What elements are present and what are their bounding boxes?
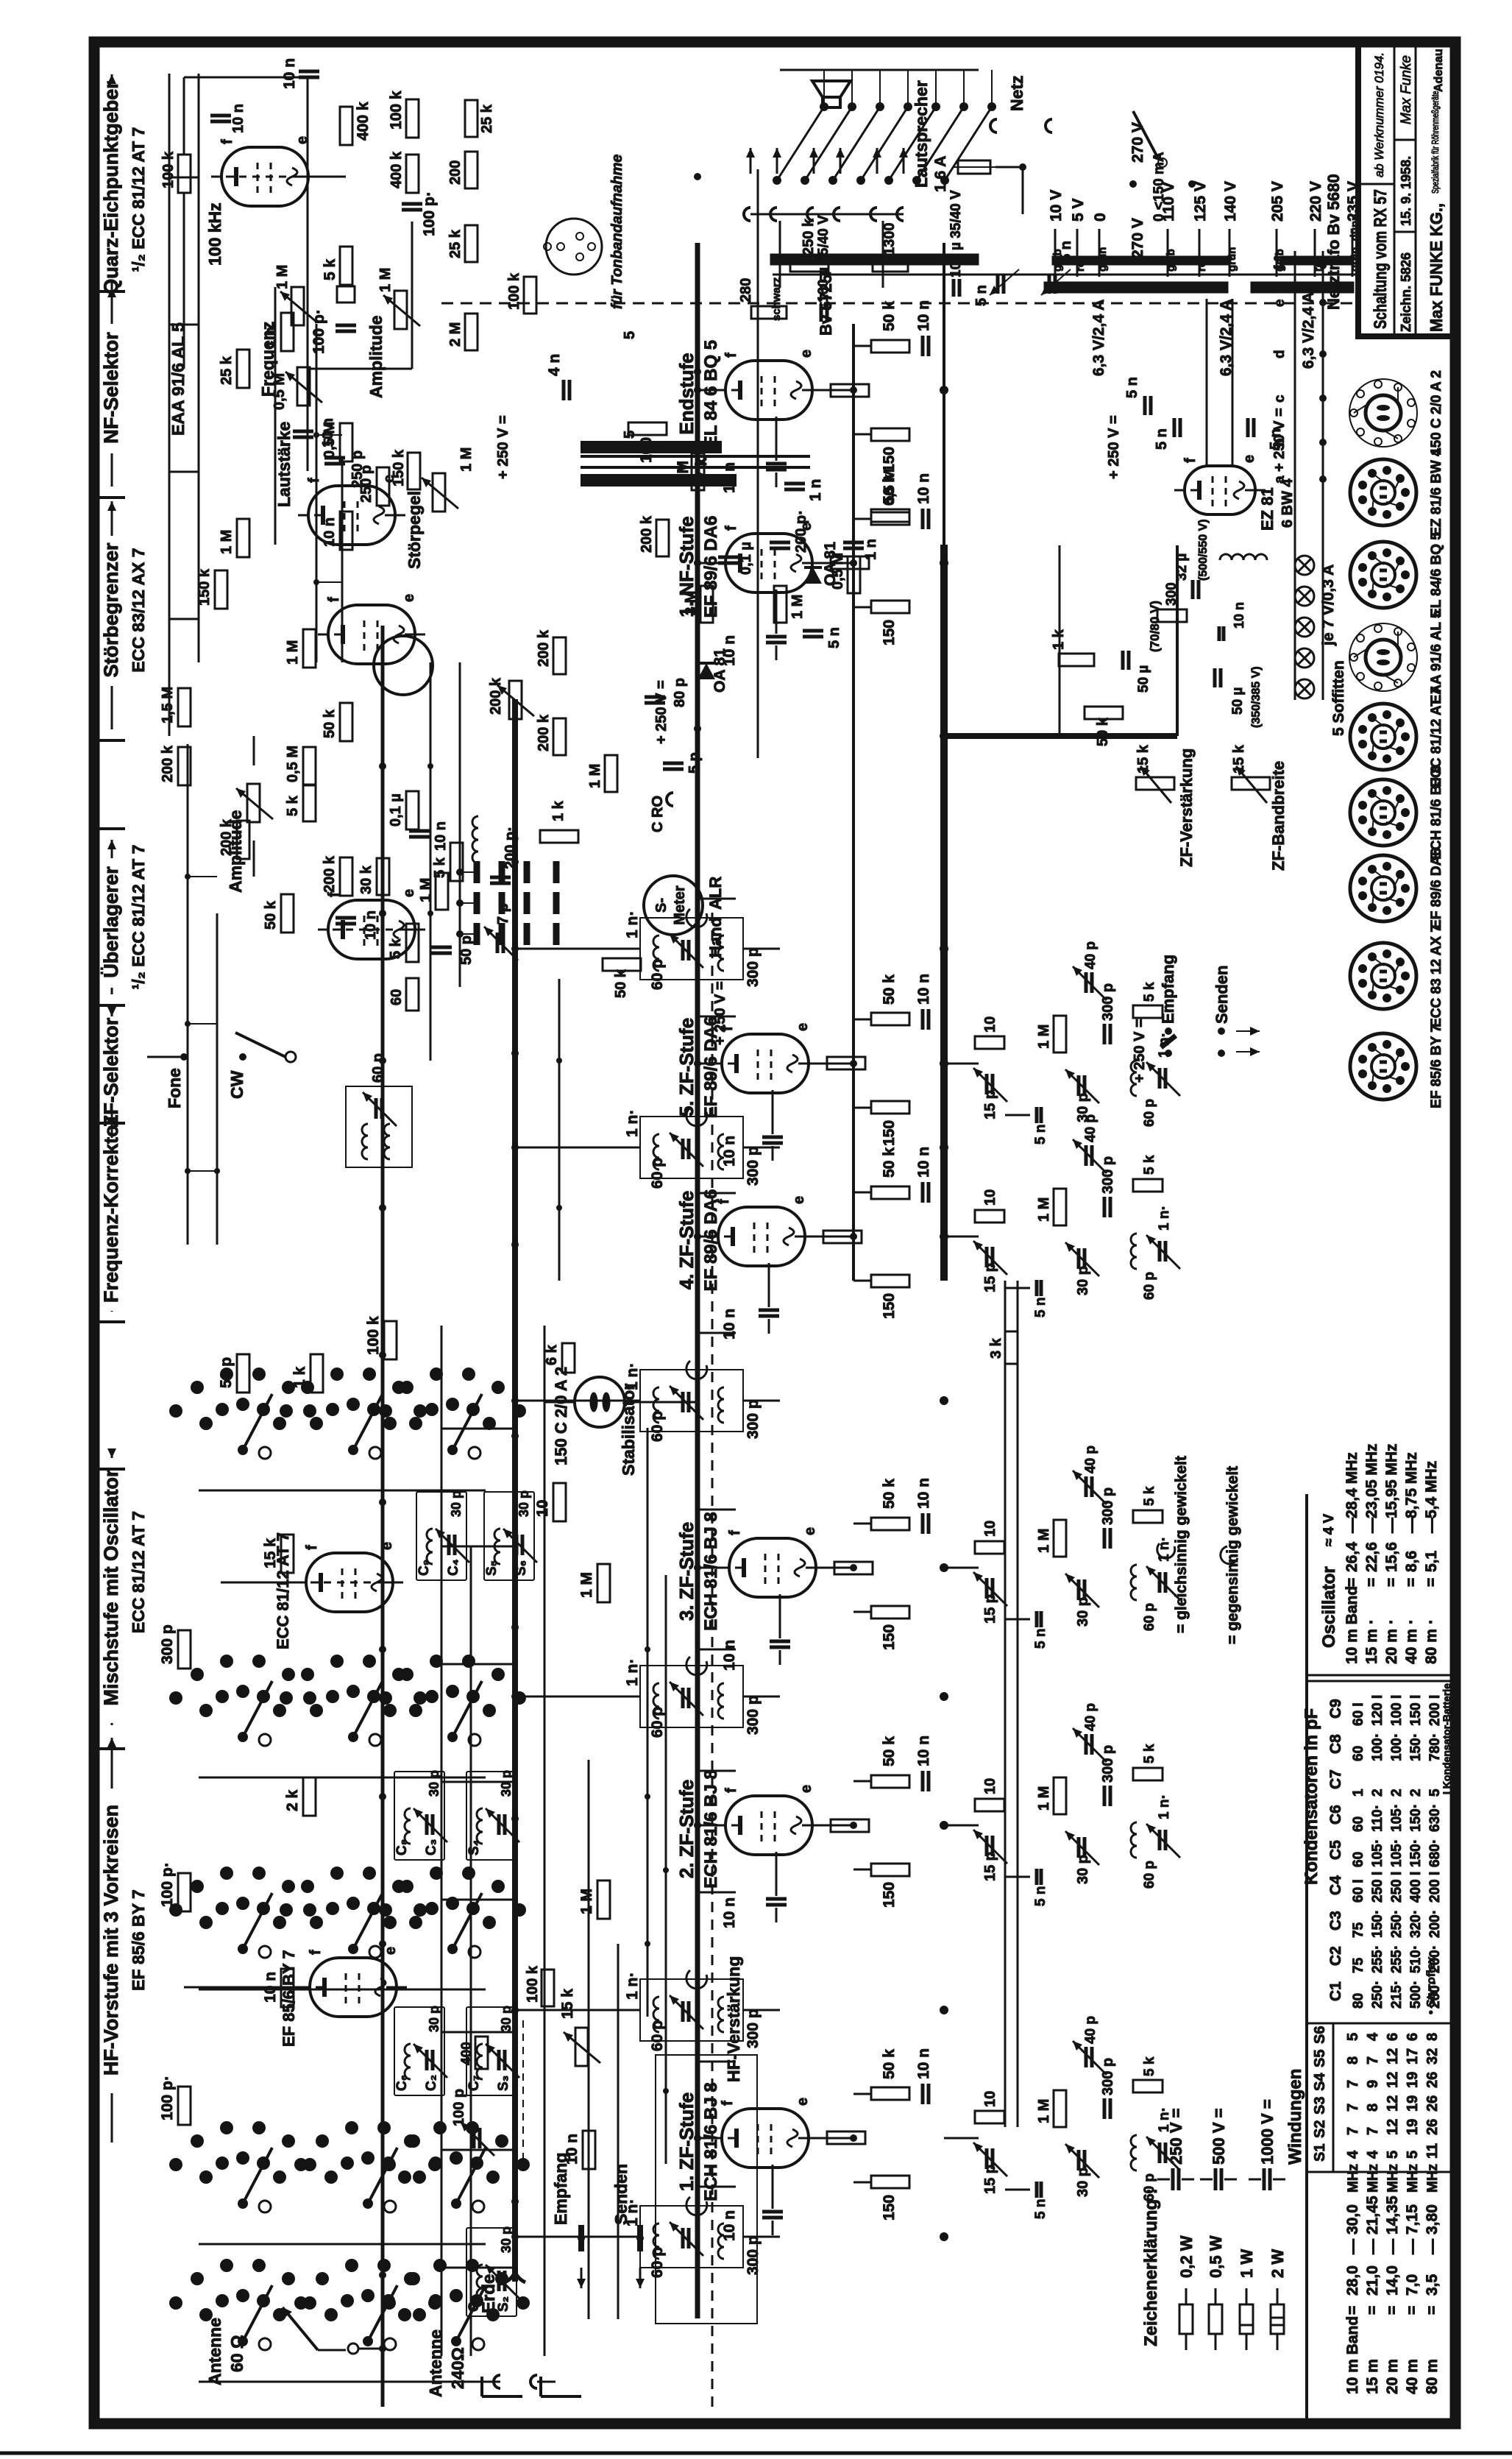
svg-text:Mischstufe mit Oscillator: Mischstufe mit Oscillator [100, 1469, 122, 1706]
svg-text:C9: C9 [1327, 1699, 1344, 1719]
svg-text:e: e [798, 1785, 814, 1793]
svg-text:17: 17 [1405, 2048, 1421, 2065]
svg-text:+ 250 V =: + 250 V = [1132, 1019, 1148, 1083]
svg-text:80 p: 80 p [672, 678, 688, 707]
svg-text:7,0: 7,0 [1404, 2274, 1421, 2296]
svg-text:ECC 83 12 AX 7: ECC 83 12 AX 7 [1429, 924, 1444, 1027]
svg-text:300 p: 300 p [1100, 1745, 1116, 1783]
svg-text:Adenau: Adenau [1433, 49, 1445, 92]
svg-text:5 k: 5 k [1142, 1486, 1157, 1506]
svg-text:MHz: MHz [1366, 2164, 1381, 2193]
svg-text:250‧: 250‧ [1370, 1981, 1385, 2009]
svg-text:270 V: 270 V [1129, 218, 1146, 258]
svg-text:= gegensinnig gewickelt: = gegensinnig gewickelt [1224, 1466, 1241, 1644]
svg-text:15 k: 15 k [559, 1989, 576, 2019]
svg-text:60 I: 60 I [1351, 1702, 1366, 1726]
svg-text:—: — [1364, 2239, 1381, 2254]
svg-text:C6: C6 [1327, 1805, 1344, 1825]
svg-text:15,95 MHz: 15,95 MHz [1383, 1443, 1400, 1518]
svg-text:300 p: 300 p [745, 1695, 762, 1735]
svg-text:105‧: 105‧ [1389, 1804, 1405, 1832]
svg-text:C₈: C₈ [394, 1839, 410, 1855]
svg-text:e: e [791, 1196, 807, 1204]
svg-text:150‧: 150‧ [1408, 1804, 1424, 1832]
svg-text:5 k: 5 k [1142, 1155, 1157, 1175]
svg-text:10: 10 [982, 2091, 998, 2107]
svg-text:ZF-Bandbreite: ZF-Bandbreite [1269, 761, 1288, 871]
svg-text:I Kondensator-Batterie: I Kondensator-Batterie [1441, 1683, 1452, 1794]
svg-text:200 p‧: 200 p‧ [793, 511, 809, 553]
svg-text:e: e [1272, 299, 1288, 307]
svg-text:300 p: 300 p [1100, 1487, 1116, 1525]
svg-text:400 k: 400 k [388, 151, 405, 188]
svg-text:25 k: 25 k [219, 355, 235, 385]
svg-text:1 M: 1 M [789, 595, 806, 619]
svg-text:28,4 MHz: 28,4 MHz [1344, 1452, 1360, 1518]
svg-text:200 k: 200 k [322, 855, 338, 893]
svg-text:510‧: 510‧ [1408, 1945, 1424, 1973]
svg-text:40 m: 40 m [1404, 2359, 1421, 2394]
svg-text:=: = [1383, 1578, 1400, 1587]
svg-text:50 k: 50 k [1095, 717, 1111, 746]
svg-text:1 M: 1 M [377, 268, 394, 292]
svg-text:=: = [1384, 2306, 1401, 2315]
svg-text:10 n: 10 n [433, 821, 449, 851]
svg-text:1 M: 1 M [285, 640, 301, 665]
svg-text:0 <150 mA: 0 <150 mA [1151, 152, 1167, 222]
svg-text:100‧: 100‧ [1370, 1733, 1385, 1761]
svg-text:15 m: 15 m [1364, 2359, 1381, 2394]
svg-text:1 M: 1 M [1036, 1786, 1052, 1811]
svg-text:240Ω: 240Ω [448, 2347, 467, 2389]
svg-text:1 M: 1 M [1036, 1025, 1052, 1049]
svg-text:¹/₂ ECC 81/12 AT 7: ¹/₂ ECC 81/12 AT 7 [129, 845, 148, 990]
svg-text:5: 5 [1345, 2033, 1361, 2041]
svg-text:50 k: 50 k [881, 1736, 898, 1766]
svg-text:=: = [1363, 1578, 1380, 1587]
svg-text:5 n: 5 n [1033, 1125, 1048, 1144]
svg-text:OA 81: OA 81 [711, 648, 728, 693]
svg-text:S3: S3 [1312, 2097, 1328, 2115]
svg-text:30 p: 30 p [1075, 1597, 1091, 1627]
svg-text:EAA 91/6 AL 5: EAA 91/6 AL 5 [1429, 610, 1444, 704]
svg-text:1 n: 1 n [263, 327, 279, 348]
svg-text:12: 12 [1385, 2119, 1401, 2135]
svg-text:100 k: 100 k [160, 151, 177, 188]
svg-text:e: e [795, 2098, 811, 2106]
svg-text:Frequenz-Korrektor: Frequenz-Korrektor [100, 1117, 122, 1303]
svg-text:EF 85/6 BY 7: EF 85/6 BY 7 [280, 1950, 298, 2047]
svg-text:10 n: 10 n [721, 1309, 738, 1340]
svg-text:Spezialfabrik für Röhrenmeßger: Spezialfabrik für Röhrenmeßgeräte, [1430, 89, 1441, 194]
svg-text:=: = [1364, 2306, 1381, 2315]
svg-text:300 p: 300 p [159, 1624, 176, 1664]
svg-text:7,15: 7,15 [1404, 2204, 1421, 2235]
svg-text:10 n: 10 n [721, 2210, 738, 2241]
svg-text:e: e [1241, 455, 1257, 463]
svg-text:26: 26 [1424, 2119, 1441, 2135]
svg-text:60 p: 60 p [649, 1158, 666, 1189]
svg-text:Zeichenerklärung :: Zeichenerklärung : [1141, 2188, 1161, 2346]
svg-text:0,2 W: 0,2 W [1177, 2235, 1196, 2278]
svg-text:8,6: 8,6 [1403, 1551, 1420, 1572]
svg-text:2 k: 2 k [284, 1789, 301, 1811]
svg-text:8: 8 [1365, 2104, 1381, 2112]
svg-text:10 n: 10 n [915, 2048, 932, 2079]
svg-text:15 p: 15 p [982, 1594, 998, 1624]
svg-text:7 k: 7 k [693, 457, 710, 479]
svg-text:0,5 M: 0,5 M [881, 469, 898, 506]
svg-text:Max Funke: Max Funke [1399, 55, 1414, 124]
svg-text:15. 9. 1958.: 15. 9. 1958. [1399, 156, 1413, 226]
svg-text:EF 89/6 DA6: EF 89/6 DA6 [701, 1189, 721, 1292]
svg-text:50 k: 50 k [322, 709, 338, 738]
svg-text:10 n: 10 n [230, 104, 246, 133]
svg-text:EF 85/6 BY 7: EF 85/6 BY 7 [1429, 1025, 1444, 1108]
svg-text:e: e [802, 1527, 818, 1535]
svg-text:1 M: 1 M [578, 1889, 595, 1914]
svg-text:150: 150 [881, 2195, 898, 2221]
svg-text:110‧: 110‧ [1370, 1805, 1385, 1832]
svg-text:Max FUNKE KG.,: Max FUNKE KG., [1427, 203, 1446, 332]
svg-text:Hand: Hand [706, 917, 725, 958]
svg-text:60 p: 60 p [1142, 1272, 1157, 1300]
svg-text:f: f [306, 478, 322, 483]
svg-text:200 k: 200 k [536, 629, 552, 667]
svg-text:Stabilisator: Stabilisator [619, 1384, 638, 1476]
svg-text:1,6 A: 1,6 A [932, 156, 949, 192]
svg-text:S₆: S₆ [514, 1560, 529, 1576]
svg-text:500‧: 500‧ [1408, 1981, 1424, 2009]
svg-text:400 k: 400 k [355, 102, 372, 141]
svg-text:30 p: 30 p [427, 2006, 441, 2032]
svg-text:60: 60 [1351, 1852, 1366, 1867]
svg-text:C3: C3 [1327, 1911, 1344, 1931]
svg-text:14,0: 14,0 [1384, 2265, 1401, 2296]
svg-text:19: 19 [1405, 2095, 1421, 2112]
svg-text:5: 5 [1385, 2151, 1401, 2159]
svg-text:e: e [379, 1542, 395, 1550]
svg-text:+ 250 V =: + 250 V = [653, 680, 670, 744]
svg-text:EF 85/6 BY 7: EF 85/6 BY 7 [129, 1889, 148, 1991]
svg-text:1 M: 1 M [587, 764, 603, 788]
svg-text:680‧: 680‧ [1427, 1839, 1443, 1867]
svg-text:255‧: 255‧ [1389, 1945, 1405, 1973]
svg-text:1 n: 1 n [807, 479, 824, 501]
svg-text:=: = [1404, 2306, 1421, 2315]
svg-text:100 p‧: 100 p‧ [159, 1863, 176, 1907]
svg-text:—: — [1403, 1518, 1420, 1533]
svg-text:5: 5 [622, 331, 638, 339]
svg-text:30 p: 30 p [1075, 1266, 1091, 1295]
svg-text:C4: C4 [1327, 1875, 1344, 1895]
svg-text:Schaltung vom RX 57: Schaltung vom RX 57 [1371, 189, 1391, 329]
svg-text:3. ZF-Stufe: 3. ZF-Stufe [675, 1522, 698, 1621]
svg-text:60 p: 60 p [1142, 1099, 1157, 1127]
svg-text:S5: S5 [1312, 2050, 1328, 2067]
svg-text:100 k: 100 k [525, 1965, 541, 2003]
svg-text:150‧: 150‧ [1370, 1910, 1385, 1938]
svg-text:MHz: MHz [1425, 2164, 1441, 2193]
svg-text:2. ZF-Stufe: 2. ZF-Stufe [675, 1780, 698, 1878]
svg-text:1 n‧: 1 n‧ [1157, 1206, 1172, 1231]
svg-text:—: — [1363, 1518, 1380, 1533]
svg-text:250‧: 250‧ [1389, 1910, 1405, 1938]
svg-text:200 I: 200 I [1427, 1872, 1443, 1903]
svg-text:C₄: C₄ [446, 1559, 461, 1576]
svg-text:500 V =: 500 V = [1210, 2109, 1228, 2165]
svg-text:150: 150 [881, 1120, 898, 1146]
svg-text:9: 9 [1365, 2080, 1381, 2088]
svg-text:c: c [1272, 394, 1288, 403]
svg-text:5,4 MHz: 5,4 MHz [1423, 1461, 1440, 1518]
svg-text:f: f [723, 1788, 739, 1793]
svg-text:0,1 µ: 0,1 µ [738, 542, 754, 575]
svg-text:f: f [1182, 458, 1199, 463]
svg-text:50 µ: 50 µ [1136, 665, 1151, 693]
svg-text:10 V: 10 V [1048, 190, 1065, 222]
svg-text:14,35: 14,35 [1384, 2196, 1401, 2235]
svg-text:100‧: 100‧ [1389, 1733, 1405, 1761]
svg-text:80: 80 [1351, 1993, 1366, 2009]
svg-text:(350/385 V): (350/385 V) [1250, 666, 1263, 728]
svg-text:f: f [723, 526, 739, 531]
svg-text:270 V: 270 V [1129, 122, 1146, 163]
svg-text:15,6: 15,6 [1383, 1542, 1400, 1572]
svg-text:ZF-Selektor: ZF-Selektor [100, 1017, 122, 1127]
svg-text:5 n: 5 n [826, 627, 842, 648]
svg-text:+ 250 V =: + 250 V = [712, 981, 728, 1045]
svg-text:EZ 81/6 BW 4: EZ 81/6 BW 4 [1429, 448, 1444, 537]
svg-text:EL 84/6 BQ 5: EL 84/6 BQ 5 [1429, 532, 1444, 618]
svg-text:50 k: 50 k [263, 900, 279, 930]
svg-text:60: 60 [1351, 1746, 1366, 1761]
svg-text:C₂: C₂ [424, 2075, 439, 2091]
svg-text:250 V =: 250 V = [1167, 2109, 1185, 2165]
svg-text:MHz: MHz [1405, 2164, 1421, 2193]
svg-text:4: 4 [1365, 2150, 1381, 2159]
svg-text:ZF-Verstärkung: ZF-Verstärkung [1177, 749, 1196, 867]
svg-text:C₇: C₇ [466, 2076, 482, 2091]
svg-text:EZ 81: EZ 81 [1258, 487, 1277, 531]
svg-text:200 k: 200 k [639, 515, 655, 553]
svg-text:21,0: 21,0 [1364, 2265, 1381, 2296]
svg-text:S₅: S₅ [484, 1560, 500, 1576]
svg-text:C₉: C₉ [416, 1560, 432, 1576]
svg-text:60 p: 60 p [649, 959, 666, 990]
svg-text:15 p: 15 p [982, 1852, 998, 1881]
svg-text:1 M: 1 M [458, 447, 475, 472]
svg-text:300 p: 300 p [1100, 2058, 1116, 2095]
svg-text:220 V: 220 V [1307, 181, 1324, 222]
svg-text:8: 8 [1345, 2056, 1361, 2065]
svg-text:S1: S1 [1312, 2144, 1328, 2162]
svg-text:25 k: 25 k [447, 229, 464, 258]
svg-text:200 k: 200 k [536, 714, 552, 751]
svg-text:e: e [381, 475, 397, 483]
svg-text:150 C 2/0 A 2: 150 C 2/0 A 2 [552, 1367, 570, 1465]
svg-text:30 k: 30 k [358, 865, 375, 894]
svg-text:30,0: 30,0 [1344, 2204, 1361, 2235]
svg-text:50 k: 50 k [613, 969, 629, 998]
svg-text:für Tonbandaufnahme: für Tonbandaufnahme [609, 155, 625, 309]
svg-text:e: e [401, 594, 417, 602]
svg-text:C7: C7 [1327, 1769, 1344, 1789]
svg-text:10 m Band: 10 m Band [1344, 1586, 1360, 1664]
svg-text:f: f [727, 1530, 743, 1535]
svg-text:HF-Verstärkung: HF-Verstärkung [724, 1956, 743, 2082]
svg-text:30 p: 30 p [1075, 2168, 1091, 2197]
svg-text:30 p: 30 p [1075, 1093, 1091, 1122]
svg-text:S-: S- [653, 898, 670, 913]
svg-text:=: = [1424, 2306, 1441, 2315]
svg-text:80 m ‧: 80 m ‧ [1423, 1620, 1440, 1664]
svg-text:5 k: 5 k [432, 857, 448, 878]
svg-text:6: 6 [1405, 2033, 1421, 2041]
svg-text:—: — [1344, 2239, 1361, 2254]
svg-text:Fone: Fone [165, 1068, 184, 1108]
svg-text:C₆: C₆ [394, 2075, 410, 2091]
svg-text:150: 150 [881, 447, 898, 473]
svg-text:255‧: 255‧ [1370, 1945, 1385, 1973]
svg-text:215‧: 215‧ [1389, 1981, 1405, 2009]
svg-text:=: = [1344, 1578, 1360, 1587]
svg-text:6 k: 6 k [544, 1344, 560, 1365]
svg-text:1 n: 1 n [863, 539, 879, 560]
svg-text:7: 7 [1345, 2127, 1361, 2135]
svg-text:300 p: 300 p [1100, 983, 1116, 1021]
svg-text:22,6: 22,6 [1363, 1542, 1380, 1572]
svg-text:100 p‧: 100 p‧ [159, 2076, 176, 2120]
svg-text:10 n: 10 n [721, 1136, 738, 1167]
svg-text:40 p: 40 p [1083, 2016, 1098, 2044]
svg-text:1 k: 1 k [291, 1366, 308, 1388]
svg-text:0,5 M: 0,5 M [285, 746, 301, 782]
svg-text:C RO: C RO [650, 796, 666, 832]
svg-text:=: = [1423, 1578, 1440, 1587]
svg-text:(500/550 V): (500/550 V) [1197, 519, 1210, 581]
svg-text:15 p: 15 p [982, 2165, 998, 2194]
svg-text:MHz: MHz [1385, 2164, 1401, 2193]
svg-text:=: = [1403, 1578, 1420, 1587]
svg-text:1 k: 1 k [550, 800, 567, 821]
svg-text:60 I: 60 I [1351, 1879, 1366, 1903]
svg-text:60 p: 60 p [649, 1411, 666, 1442]
svg-text:1 W: 1 W [1238, 2249, 1256, 2278]
svg-text:300 p: 300 p [745, 2009, 762, 2048]
svg-text:Störbegrenzer: Störbegrenzer [100, 542, 122, 678]
svg-text:ECH 81/6 BJ 8: ECH 81/6 BJ 8 [701, 1512, 721, 1630]
svg-text:—: — [1424, 2239, 1441, 2254]
svg-text:5,1: 5,1 [1423, 1550, 1440, 1572]
svg-text:15 k: 15 k [1231, 744, 1247, 774]
svg-text:0,5 M: 0,5 M [271, 373, 288, 410]
svg-text:2: 2 [1389, 1788, 1405, 1797]
svg-text:300 p: 300 p [745, 1399, 762, 1439]
svg-text:10: 10 [534, 1500, 551, 1517]
svg-text:30 p: 30 p [1075, 1855, 1091, 1884]
svg-text:Quarz-Eichpunktgeber: Quarz-Eichpunktgeber [100, 81, 122, 294]
svg-text:5 p: 5 p [686, 752, 703, 774]
svg-text:7: 7 [1365, 2056, 1381, 2065]
svg-text:0,5 M: 0,5 M [830, 553, 846, 590]
svg-text:60 p: 60 p [1142, 1861, 1157, 1889]
svg-text:5 n: 5 n [1124, 377, 1140, 398]
svg-text:Störpegel: Störpegel [405, 491, 424, 569]
svg-text:HF-Vorstufe mit 3 Vorkreisen: HF-Vorstufe mit 3 Vorkreisen [100, 1805, 122, 2076]
svg-text:Überlagerer: Überlagerer [100, 866, 122, 978]
svg-text:d: d [1272, 350, 1288, 358]
svg-text:• Styroflex: • Styroflex [1425, 1956, 1438, 2014]
svg-text:10 n: 10 n [721, 1897, 738, 1928]
svg-text:10 n: 10 n [363, 910, 379, 940]
svg-text:1 M: 1 M [418, 878, 434, 902]
svg-text:2: 2 [1370, 1788, 1385, 1797]
svg-text:10 n: 10 n [915, 974, 932, 1005]
svg-text:10: 10 [982, 1521, 998, 1537]
svg-text:250 I: 250 I [1370, 1872, 1385, 1903]
svg-text:Oscillator: Oscillator [1319, 1566, 1339, 1648]
svg-text:¹/₂ ECC 81/12 AT 7: ¹/₂ ECC 81/12 AT 7 [129, 127, 148, 272]
svg-text:NF-Selektor: NF-Selektor [100, 332, 122, 444]
svg-text:125 V: 125 V [1192, 181, 1209, 222]
svg-text:400: 400 [459, 2042, 475, 2065]
svg-text:10 n: 10 n [915, 300, 932, 331]
svg-text:7: 7 [1345, 2080, 1361, 2088]
svg-text:23,05 MHz: 23,05 MHz [1363, 1443, 1380, 1518]
svg-text:10 n: 10 n [915, 1478, 932, 1509]
svg-text:—: — [1404, 2239, 1421, 2254]
svg-text:10: 10 [982, 1778, 998, 1794]
svg-text:1 M: 1 M [1036, 1197, 1052, 1222]
svg-text:40 p: 40 p [1083, 1703, 1098, 1731]
svg-text:ab Werknummer 0194.: ab Werknummer 0194. [1372, 52, 1386, 177]
svg-text:5 k: 5 k [1142, 982, 1157, 1002]
svg-text:5 n: 5 n [1033, 2199, 1048, 2219]
svg-text:6,3 V/2,4 A: 6,3 V/2,4 A [1300, 292, 1317, 369]
svg-text:60 p: 60 p [649, 2247, 666, 2278]
svg-text:100 I: 100 I [1389, 1695, 1405, 1726]
svg-text:40 m ‧: 40 m ‧ [1403, 1620, 1420, 1664]
svg-text:250 p: 250 p [358, 465, 375, 503]
svg-text:200 k: 200 k [488, 677, 504, 715]
svg-text:ECC 81/12 AT 7: ECC 81/12 AT 7 [129, 1511, 148, 1633]
svg-text:ECC 81/12 AT 7: ECC 81/12 AT 7 [274, 1532, 292, 1649]
svg-text:15 k: 15 k [1135, 744, 1151, 774]
svg-text:Endstufe: Endstufe [675, 353, 698, 434]
svg-text:ALR: ALR [706, 877, 725, 910]
svg-text:Senden: Senden [1213, 966, 1231, 1024]
svg-text:5 k: 5 k [285, 795, 301, 816]
svg-text:≈ 4 V: ≈ 4 V [1321, 1513, 1337, 1546]
svg-text:15 p: 15 p [982, 1263, 998, 1292]
svg-text:150‧: 150‧ [1408, 1733, 1424, 1761]
svg-text:30 p: 30 p [499, 1770, 514, 1797]
svg-text:26,4: 26,4 [1344, 1542, 1360, 1572]
svg-text:30 p: 30 p [517, 1490, 531, 1517]
svg-text:10 n: 10 n [281, 58, 298, 89]
svg-text:10 n: 10 n [915, 1736, 932, 1766]
svg-text:f: f [326, 597, 342, 602]
svg-text:+ 250 V =: + 250 V = [495, 415, 511, 479]
svg-text:75: 75 [1351, 1922, 1366, 1938]
svg-text:ECH 81/6 BJ 8: ECH 81/6 BJ 8 [701, 2082, 721, 2201]
svg-text:Kondensatoren in pF: Kondensatoren in pF [1302, 1708, 1321, 1885]
svg-text:2 M: 2 M [447, 322, 464, 347]
svg-text:—: — [1344, 1518, 1360, 1533]
svg-text:28,0: 28,0 [1344, 2265, 1361, 2296]
svg-text:105‧: 105‧ [1389, 1839, 1405, 1867]
